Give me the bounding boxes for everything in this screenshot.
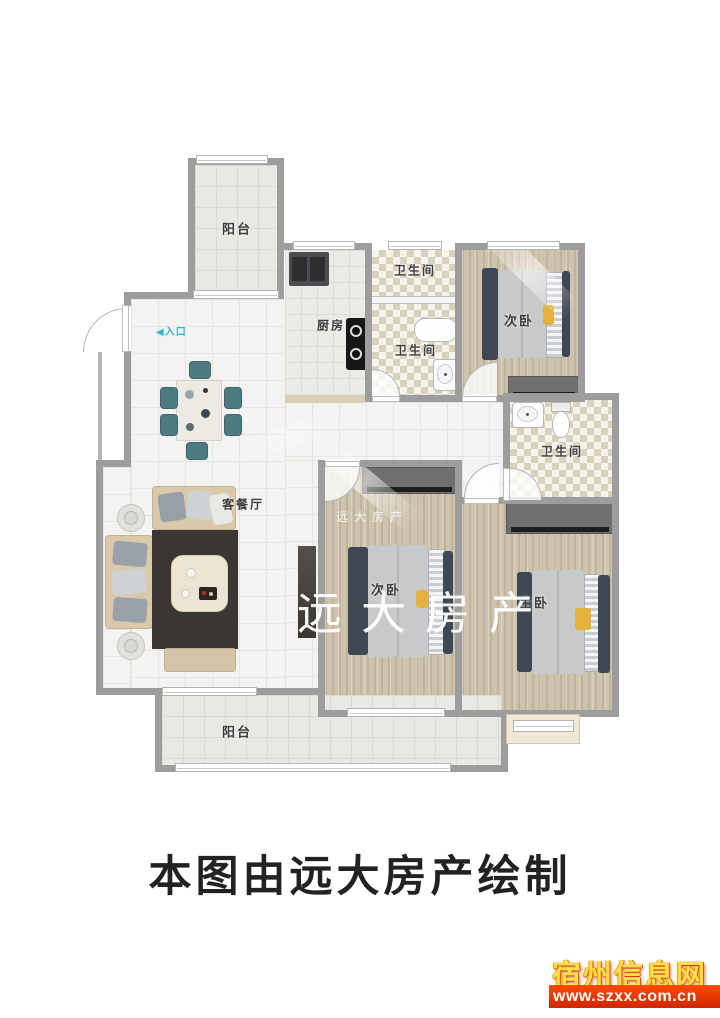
bottle [203,388,208,393]
dining-table [176,380,222,441]
wall [96,460,103,695]
label-bedroom-top-right: 次卧 [504,311,534,330]
wall [455,460,462,717]
window [196,155,268,164]
label-kitchen: 厨房 [317,317,345,334]
wall [188,158,195,299]
entrance-text: 入口 [165,327,187,338]
door-leaf [503,468,510,501]
bathroom-sink [512,402,544,428]
wardrobe [362,467,457,494]
label-bedroom-bottom-left: 次卧 [371,580,401,599]
label-bath-mid: 卫生间 [395,342,437,359]
dining-chair [186,442,208,460]
bed-master [517,570,612,674]
sofa-cushion [111,568,147,595]
window [388,241,442,250]
tv-bench [164,648,236,672]
window [513,720,574,732]
tv-panel [298,546,316,638]
wall [612,393,619,717]
wall [124,292,190,299]
side-stool [117,504,145,532]
floor-plan-page: { "rooms": { "balcony_top": "阳台", "balco… [0,0,720,1018]
toilet [549,402,573,440]
burner-icon [350,325,362,337]
sink-basin [292,257,307,281]
plate [186,423,194,431]
label-bedroom-master: 主卧 [519,593,549,612]
sofa-cushion [157,491,187,522]
wall [360,460,462,467]
sliding-door [193,290,279,299]
wall [318,460,325,717]
sink-basin [310,257,325,281]
entrance-label: ◀入口 [156,323,187,338]
window [175,763,451,772]
dining-chair [160,387,178,409]
bed-bottom-left [348,545,456,657]
coffee-table [171,555,228,612]
dining-chair [224,414,242,436]
room-balcony-bottom [162,695,501,765]
drain-dot [444,373,447,376]
dining-chair [224,387,242,409]
bay-window [506,714,580,744]
site-url-banner: www.szxx.com.cn [549,985,720,1008]
sofa-left-section [105,535,153,629]
label-balcony-bottom: 阳台 [222,722,252,741]
wall [365,395,372,402]
kitchen-sink-unit [289,252,329,286]
wall [455,243,462,402]
label-bath-right: 卫生间 [541,443,583,460]
wall [399,395,460,402]
caption-title: 本图由远大房产绘制 [0,842,720,904]
label-bath-top: 卫生间 [394,262,436,279]
tray-item [209,592,213,596]
toilet-bowl [552,411,570,438]
sofa-cushion [112,597,148,623]
window [487,241,560,250]
door-leaf [462,396,497,402]
sofa-cushion [112,541,148,568]
wall [98,352,102,462]
bathtub [414,318,458,342]
side-stool [117,632,145,660]
door-leaf [464,498,499,504]
wall [96,688,162,695]
cup [186,568,196,578]
wall [503,393,510,468]
tray-item [202,591,206,595]
wall [455,395,462,402]
door-arc [83,308,127,352]
drain-dot [526,413,529,416]
dining-chair [189,361,211,379]
wall [277,158,284,299]
label-living: 客餐厅 [222,496,264,513]
wall [503,393,619,400]
wall [578,243,585,400]
window [293,241,355,250]
plate [185,390,194,399]
wardrobe [506,502,614,534]
wall [124,351,131,467]
plate [201,409,210,418]
burner-icon [350,348,362,360]
wall [155,688,162,772]
tray [199,587,217,600]
kitchen-threshold [285,395,365,403]
cup [181,589,190,598]
bath-divider-shelf [372,296,455,304]
window [347,708,445,717]
dining-chair [160,414,178,436]
wall [365,243,372,402]
entrance-arrow-icon: ◀ [156,327,165,338]
label-balcony-top: 阳台 [222,219,252,238]
door-leaf [325,461,360,467]
wall [124,292,131,306]
door-leaf [372,396,400,402]
sliding-door [162,687,257,696]
door-leaf [122,305,129,352]
